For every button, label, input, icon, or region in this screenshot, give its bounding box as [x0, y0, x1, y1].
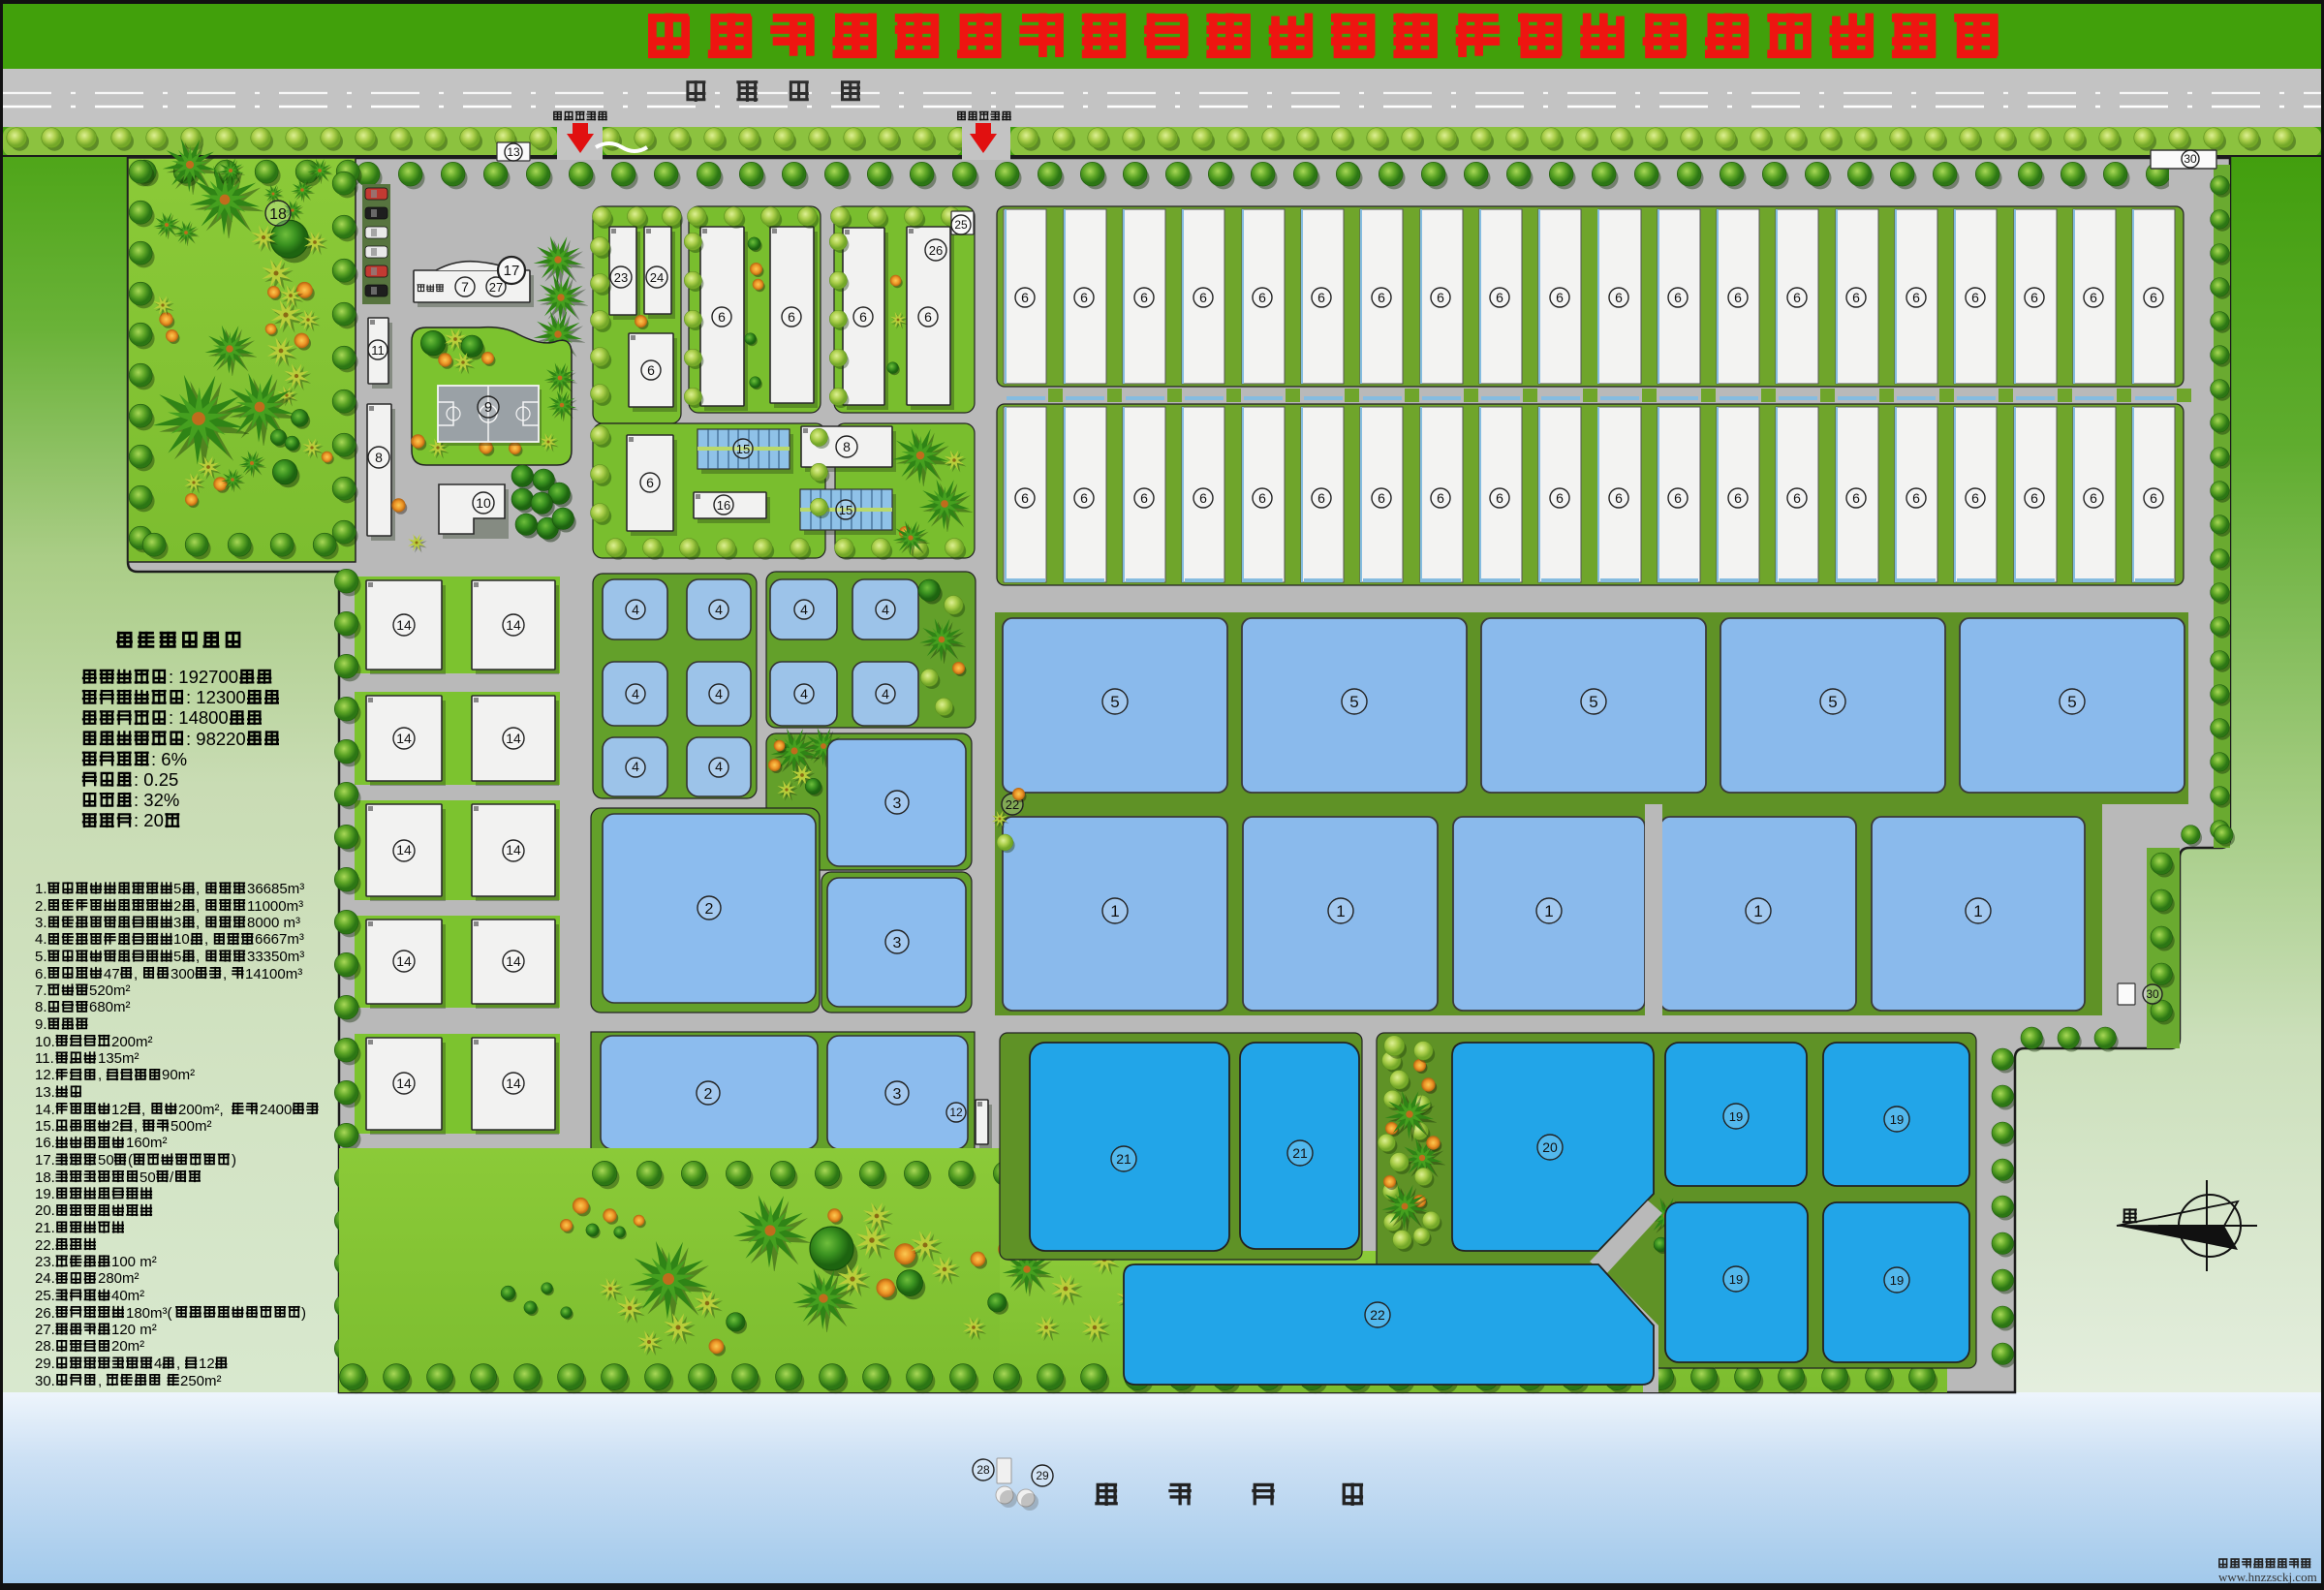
svg-text:3.: 3. [35, 915, 47, 931]
svg-text:14: 14 [396, 1076, 412, 1091]
svg-text:15: 15 [839, 503, 852, 517]
svg-text:120 m²: 120 m² [111, 1322, 157, 1338]
svg-text:6: 6 [2030, 490, 2038, 506]
svg-text:14: 14 [396, 731, 412, 746]
svg-text:13: 13 [507, 145, 520, 159]
svg-text:,: , [98, 1067, 102, 1083]
svg-text:6: 6 [1378, 290, 1385, 305]
svg-text:1.: 1. [35, 881, 47, 897]
svg-text:14: 14 [506, 953, 521, 969]
svg-text:6: 6 [1615, 490, 1623, 506]
svg-text:6: 6 [718, 309, 726, 325]
svg-text:: 192700: : 192700 [169, 667, 238, 687]
svg-text:: 6%: : 6% [151, 749, 187, 769]
svg-text:6: 6 [1852, 290, 1860, 305]
svg-text:135m²: 135m² [98, 1050, 139, 1067]
svg-text:6: 6 [2150, 490, 2157, 506]
svg-text:11: 11 [371, 343, 385, 358]
svg-text:25.: 25. [35, 1288, 55, 1304]
svg-text:160m²: 160m² [126, 1135, 168, 1151]
svg-text:28: 28 [976, 1463, 990, 1477]
svg-text:21: 21 [1292, 1145, 1308, 1161]
svg-text:26.: 26. [35, 1305, 55, 1322]
svg-text:18.: 18. [35, 1169, 55, 1186]
svg-text:14: 14 [506, 1076, 521, 1091]
svg-text:6: 6 [1258, 290, 1266, 305]
svg-text:19: 19 [1890, 1273, 1904, 1288]
svg-text:,: , [98, 1373, 102, 1389]
svg-text:2: 2 [705, 901, 714, 918]
svg-text:5.: 5. [35, 949, 47, 965]
svg-text:6: 6 [1556, 490, 1564, 506]
svg-text:20.: 20. [35, 1202, 55, 1219]
svg-text:9.: 9. [35, 1016, 47, 1033]
svg-text:24.: 24. [35, 1270, 55, 1287]
svg-text:6: 6 [1734, 490, 1742, 506]
svg-text:2.: 2. [35, 898, 47, 915]
svg-text:22: 22 [1370, 1307, 1385, 1323]
svg-text:14: 14 [396, 953, 412, 969]
svg-text:47: 47 [104, 966, 120, 982]
svg-text:5: 5 [1110, 693, 1119, 711]
svg-text:250m²: 250m² [180, 1373, 222, 1389]
svg-text:1: 1 [1753, 902, 1762, 920]
svg-text:3: 3 [893, 1086, 902, 1103]
svg-text:6: 6 [1556, 290, 1564, 305]
svg-text:6: 6 [1317, 290, 1325, 305]
svg-text:6: 6 [859, 309, 867, 325]
svg-text:6: 6 [1140, 490, 1148, 506]
svg-text:6: 6 [1437, 490, 1444, 506]
svg-text:4: 4 [154, 1356, 162, 1372]
svg-text:,: , [134, 1118, 138, 1135]
svg-text:4: 4 [715, 686, 723, 701]
svg-text:14: 14 [396, 842, 412, 857]
svg-text:6: 6 [924, 309, 932, 325]
svg-text:5: 5 [1349, 693, 1358, 711]
svg-text:25: 25 [954, 218, 968, 232]
svg-text:200m²: 200m² [111, 1034, 153, 1050]
svg-text:18: 18 [269, 206, 287, 223]
svg-text:6: 6 [1793, 290, 1801, 305]
svg-text:: 20: : 20 [134, 810, 164, 830]
svg-text:6: 6 [1140, 290, 1148, 305]
svg-text:2: 2 [173, 898, 181, 915]
svg-text:7: 7 [461, 279, 469, 295]
svg-text:1: 1 [1973, 902, 1982, 920]
svg-text:19: 19 [1729, 1109, 1743, 1124]
svg-text:6: 6 [2090, 290, 2097, 305]
svg-text:14: 14 [506, 731, 521, 746]
svg-text:90m²: 90m² [162, 1067, 195, 1083]
svg-text:6: 6 [2030, 290, 2038, 305]
svg-text:23: 23 [614, 270, 628, 285]
svg-text:14: 14 [506, 842, 521, 857]
svg-text:12: 12 [111, 1102, 128, 1118]
svg-text:6: 6 [1971, 290, 1979, 305]
svg-text:,: , [196, 915, 200, 931]
svg-text:4: 4 [800, 602, 808, 617]
svg-text:4: 4 [632, 759, 639, 774]
svg-text:10: 10 [476, 495, 491, 511]
svg-text:30: 30 [2146, 987, 2159, 1001]
svg-text:1: 1 [1336, 902, 1345, 920]
svg-text:20m²: 20m² [111, 1338, 144, 1355]
svg-text:180m³(: 180m³( [126, 1305, 172, 1322]
svg-text:23.: 23. [35, 1254, 55, 1270]
svg-text:14: 14 [506, 617, 521, 633]
svg-text:300: 300 [170, 966, 195, 982]
svg-text:14: 14 [396, 617, 412, 633]
svg-text:5: 5 [1589, 693, 1597, 711]
svg-text:): ) [301, 1305, 306, 1322]
svg-text:10.: 10. [35, 1034, 55, 1050]
svg-text:29.: 29. [35, 1356, 55, 1372]
svg-text:16: 16 [717, 498, 730, 513]
svg-text:6: 6 [2150, 290, 2157, 305]
svg-text:2400: 2400 [260, 1102, 292, 1118]
svg-text:4: 4 [882, 602, 889, 617]
svg-text:,: , [223, 966, 227, 982]
svg-text:2: 2 [111, 1118, 119, 1135]
svg-text:4.: 4. [35, 931, 47, 948]
svg-text:,: , [141, 1102, 145, 1118]
svg-text:11.: 11. [35, 1050, 54, 1067]
svg-text:21: 21 [1116, 1151, 1131, 1167]
svg-text:50: 50 [98, 1152, 114, 1169]
svg-text:21.: 21. [35, 1220, 55, 1236]
svg-text:27.: 27. [35, 1322, 55, 1338]
svg-text:5: 5 [173, 949, 181, 965]
svg-text:,: , [196, 949, 200, 965]
svg-text:4: 4 [882, 686, 889, 701]
svg-text:,: , [134, 966, 138, 982]
svg-text:5: 5 [173, 881, 181, 897]
svg-text:6: 6 [1317, 490, 1325, 506]
svg-text:): ) [232, 1152, 236, 1169]
svg-text:19: 19 [1890, 1112, 1904, 1127]
svg-text:4: 4 [715, 602, 723, 617]
svg-text:8000 m³: 8000 m³ [247, 915, 300, 931]
svg-text:6: 6 [1080, 290, 1088, 305]
svg-text:6: 6 [1199, 290, 1207, 305]
svg-text:3: 3 [893, 935, 902, 951]
svg-text:6667m³: 6667m³ [255, 931, 304, 948]
svg-text:8: 8 [843, 439, 851, 454]
svg-text:17.: 17. [35, 1152, 55, 1169]
svg-text:14.: 14. [35, 1102, 55, 1118]
svg-text:6: 6 [2090, 490, 2097, 506]
svg-text:6: 6 [1199, 490, 1207, 506]
svg-text:15: 15 [736, 442, 750, 456]
svg-text:33350m³: 33350m³ [247, 949, 304, 965]
svg-text:17: 17 [504, 263, 520, 279]
svg-text:2: 2 [704, 1086, 713, 1103]
svg-text:6: 6 [1674, 290, 1682, 305]
svg-text:5: 5 [2067, 693, 2076, 711]
svg-text:: 12300: : 12300 [186, 687, 246, 707]
svg-text:4: 4 [800, 686, 808, 701]
svg-text:520m²: 520m² [89, 982, 131, 999]
svg-text:9: 9 [484, 399, 492, 416]
svg-text:30: 30 [2184, 152, 2197, 166]
svg-text:26: 26 [929, 243, 943, 258]
svg-text:6: 6 [1793, 490, 1801, 506]
svg-text:36685m³: 36685m³ [247, 881, 304, 897]
svg-text:280m²: 280m² [98, 1270, 139, 1287]
svg-text:3: 3 [893, 795, 902, 812]
svg-text:6: 6 [788, 309, 795, 325]
svg-text:27: 27 [489, 280, 503, 295]
svg-text:4: 4 [715, 759, 723, 774]
svg-text:: 0.25: : 0.25 [134, 769, 178, 790]
svg-text:11000m³: 11000m³ [247, 898, 303, 915]
svg-text:6: 6 [1437, 290, 1444, 305]
svg-text:15.: 15. [35, 1118, 55, 1135]
svg-text:16.: 16. [35, 1135, 55, 1151]
svg-text:6: 6 [1258, 490, 1266, 506]
svg-text:4: 4 [632, 602, 639, 617]
svg-text:,: , [196, 898, 200, 915]
svg-text:40m²: 40m² [111, 1288, 144, 1304]
svg-text:(: ( [128, 1152, 133, 1169]
svg-text:8.: 8. [35, 999, 47, 1015]
svg-text:7.: 7. [35, 982, 47, 999]
svg-text:5: 5 [1828, 693, 1837, 711]
svg-text:6: 6 [1971, 490, 1979, 506]
svg-text:,: , [176, 1356, 180, 1372]
svg-text:: 98220: : 98220 [186, 729, 246, 749]
svg-text:,: , [204, 931, 208, 948]
svg-text:24: 24 [650, 270, 664, 285]
svg-text:12: 12 [949, 1106, 963, 1119]
svg-text:30.: 30. [35, 1373, 55, 1389]
svg-text:680m²: 680m² [89, 999, 131, 1015]
svg-text:200m²,: 200m², [178, 1102, 224, 1118]
svg-text:6: 6 [1852, 490, 1860, 506]
svg-text:6: 6 [1080, 490, 1088, 506]
svg-text:6: 6 [1378, 490, 1385, 506]
svg-text:6: 6 [1734, 290, 1742, 305]
svg-text:14100m³: 14100m³ [245, 966, 302, 982]
svg-text:50: 50 [139, 1169, 156, 1186]
svg-text:3: 3 [173, 915, 181, 931]
svg-text:6: 6 [1674, 490, 1682, 506]
svg-text:6: 6 [1615, 290, 1623, 305]
svg-text:22.: 22. [35, 1237, 55, 1254]
svg-text:29: 29 [1036, 1469, 1049, 1482]
svg-text:12: 12 [199, 1356, 215, 1372]
svg-text:28.: 28. [35, 1338, 55, 1355]
svg-text:6: 6 [647, 362, 655, 378]
svg-text:6: 6 [1021, 290, 1029, 305]
svg-text:19.: 19. [35, 1186, 55, 1202]
svg-text:6: 6 [1912, 290, 1920, 305]
svg-text:6: 6 [1496, 490, 1503, 506]
svg-text:,: , [196, 881, 200, 897]
svg-text:100 m²: 100 m² [111, 1254, 157, 1270]
svg-text:6.: 6. [35, 966, 47, 982]
svg-text:19: 19 [1729, 1272, 1743, 1287]
svg-text:1: 1 [1110, 902, 1119, 920]
svg-text:500m²: 500m² [170, 1118, 212, 1135]
svg-text:4: 4 [632, 686, 639, 701]
svg-text:1: 1 [1544, 902, 1553, 920]
svg-text:12.: 12. [35, 1067, 55, 1083]
svg-text:6: 6 [646, 475, 654, 490]
svg-text:: 32%: : 32% [134, 790, 179, 810]
svg-text:10: 10 [173, 931, 190, 948]
svg-text:: 14800: : 14800 [169, 707, 229, 728]
svg-text:6: 6 [1912, 490, 1920, 506]
svg-text:13.: 13. [35, 1084, 55, 1101]
svg-text:www.hnzzsckj.com: www.hnzzsckj.com [2218, 1570, 2317, 1584]
svg-text:8: 8 [375, 450, 383, 465]
svg-text:6: 6 [1021, 490, 1029, 506]
svg-text:6: 6 [1496, 290, 1503, 305]
svg-text:20: 20 [1542, 1139, 1558, 1155]
